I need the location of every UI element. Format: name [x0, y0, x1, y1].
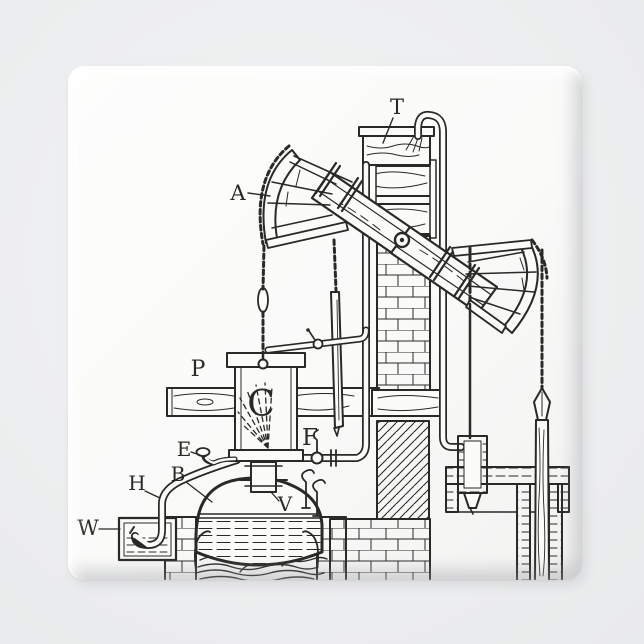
figure-labels: T A P C F E B H W V	[77, 95, 404, 540]
piston-chain	[263, 246, 264, 289]
water-tank	[359, 127, 434, 165]
label-injection-pipe: F	[302, 425, 318, 451]
magnet-product: T A P C F E B H W V	[68, 66, 582, 580]
label-boiler: B	[171, 462, 186, 486]
label-steam-valve: V	[277, 492, 293, 516]
piston-rod-eye	[259, 360, 268, 369]
product-photo-background: T A P C F E B H W V	[0, 0, 644, 644]
waste-well	[119, 518, 176, 560]
label-eduction-pipe: H	[128, 471, 145, 495]
pump-rod	[535, 420, 549, 580]
chain-link	[258, 288, 268, 312]
label-snifting-valve: E	[177, 437, 192, 461]
engraving-diagram: T A P C F E B H W V	[68, 66, 582, 580]
label-water-tank: T	[390, 95, 404, 119]
feed-pump-barrel	[458, 436, 487, 514]
label-cylinder: C	[247, 384, 275, 425]
piston-seal-cock	[314, 340, 323, 349]
label-waste-well: W	[77, 516, 99, 540]
label-arch-head: A	[229, 181, 246, 205]
plug-rod-chain	[334, 240, 336, 290]
floor-beam	[167, 388, 446, 416]
label-leader	[145, 491, 160, 498]
injection-cock	[312, 453, 323, 464]
label-piston: P	[191, 357, 206, 382]
label-leader	[186, 482, 212, 502]
